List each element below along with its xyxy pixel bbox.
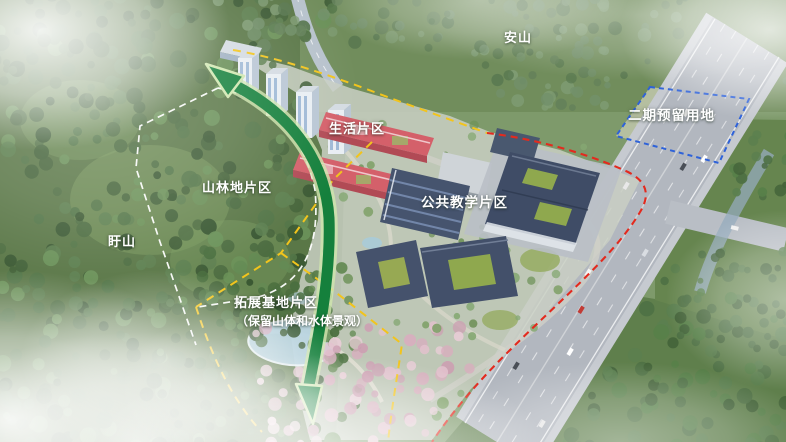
label-phase2-reserved: 二期预留用地 <box>628 109 715 123</box>
label-expansion-note: （保留山体和水体景观） <box>236 314 368 328</box>
label-mountain-xushan: 盱山 <box>108 235 136 249</box>
courtyard-building-west <box>356 240 428 308</box>
label-teaching-zone: 公共教学片区 <box>421 196 508 210</box>
aerial-render <box>0 0 786 442</box>
courtyard-building-east <box>420 236 518 308</box>
site-plan-map: 安山 二期预留用地 生活片区 山林地片区 盱山 公共教学片区 拓展基地片区 （保… <box>0 0 786 442</box>
label-forest-zone: 山林地片区 <box>202 181 272 195</box>
label-living-zone: 生活片区 <box>329 122 385 136</box>
label-expansion-zone: 拓展基地片区 <box>234 296 318 310</box>
label-mountain-anshan: 安山 <box>504 31 532 45</box>
